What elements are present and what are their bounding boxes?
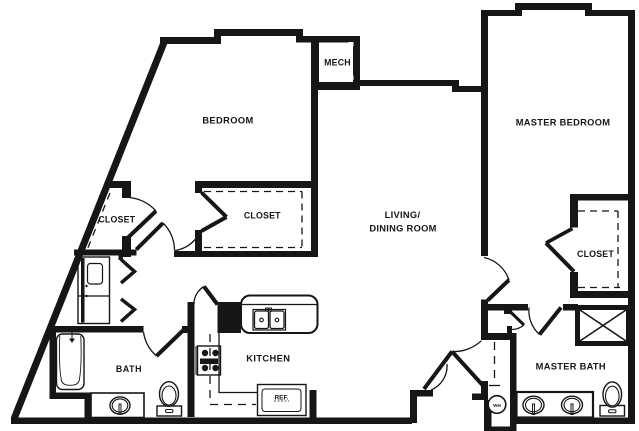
svg-text:DINING ROOM: DINING ROOM xyxy=(369,224,436,234)
svg-text:BEDROOM: BEDROOM xyxy=(202,116,253,126)
svg-text:BATH: BATH xyxy=(116,364,142,374)
svg-text:REF.: REF. xyxy=(274,395,288,402)
svg-text:CLOSET: CLOSET xyxy=(98,215,135,225)
svg-text:KITCHEN: KITCHEN xyxy=(246,354,290,364)
svg-text:LIVING/: LIVING/ xyxy=(385,210,421,220)
svg-text:MASTER BATH: MASTER BATH xyxy=(536,362,606,372)
svg-text:MECH: MECH xyxy=(324,58,351,68)
svg-text:MASTER BEDROOM: MASTER BEDROOM xyxy=(516,118,611,128)
svg-text:CLOSET: CLOSET xyxy=(244,211,281,221)
svg-text:CLOSET: CLOSET xyxy=(577,249,614,259)
svg-text:WH: WH xyxy=(493,403,501,408)
